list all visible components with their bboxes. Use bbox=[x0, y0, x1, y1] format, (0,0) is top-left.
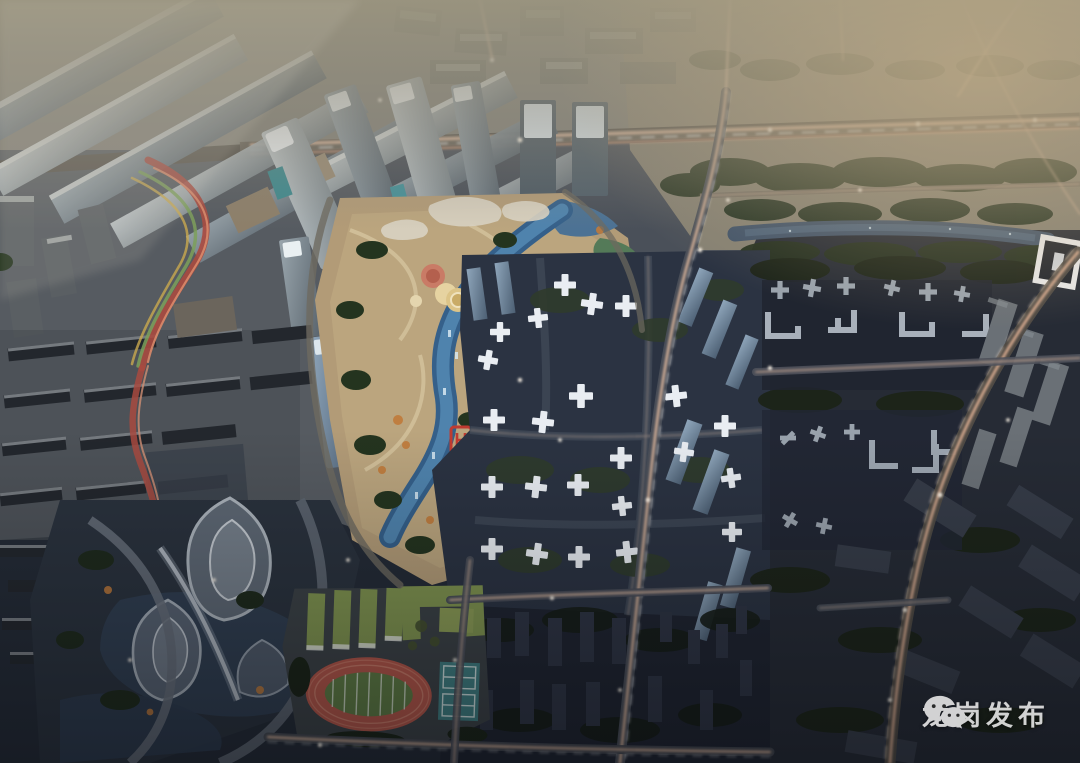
aerial-city-render: 龙岗发布 bbox=[0, 0, 1080, 763]
watermark: 龙岗发布 bbox=[922, 694, 1050, 733]
vignette bbox=[0, 430, 1080, 763]
wechat-icon bbox=[922, 694, 968, 734]
render-scene bbox=[0, 0, 1080, 763]
